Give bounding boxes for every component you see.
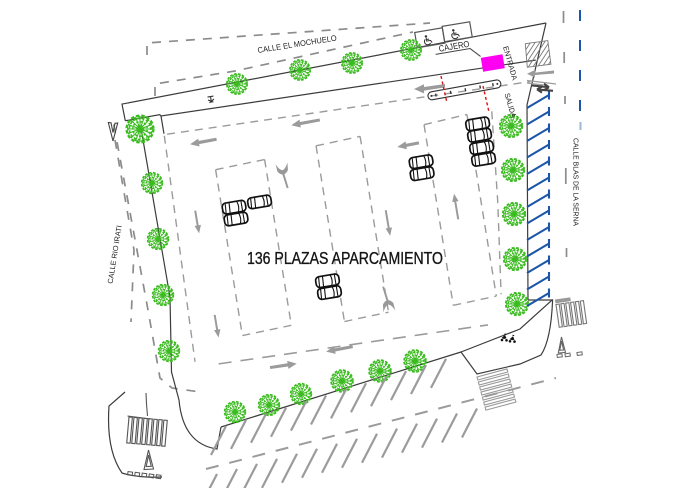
svg-text:CALLE BLAS DE LA SERNA: CALLE BLAS DE LA SERNA	[572, 138, 581, 226]
svg-text:136 PLAZAS APARCAMIENTO: 136 PLAZAS APARCAMIENTO	[247, 248, 443, 268]
